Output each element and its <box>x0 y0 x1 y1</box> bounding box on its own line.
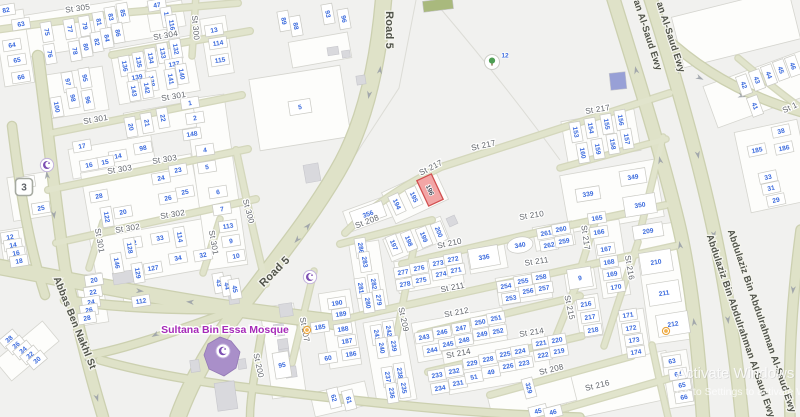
parcel[interactable]: 113 <box>218 219 237 233</box>
watermark-layer: Activate WindowsActivate WindowsGo to Se… <box>676 365 800 398</box>
building <box>303 163 321 183</box>
tree-canopy <box>489 58 495 64</box>
parcel[interactable]: 12 <box>501 52 509 59</box>
parcel[interactable]: 4 <box>195 143 214 157</box>
parcel-number: 64 <box>8 42 17 50</box>
parcel-number: 60 <box>324 355 333 363</box>
parcel-number: 13 <box>210 27 219 35</box>
parcel[interactable]: 5 <box>288 98 312 115</box>
parcel[interactable]: 9 <box>567 266 594 290</box>
park-poi-icon[interactable] <box>662 327 669 334</box>
parcel[interactable]: 188 <box>333 322 352 336</box>
parcel[interactable]: 9 <box>221 234 240 248</box>
parcel[interactable]: 2 <box>185 111 204 125</box>
parcel-number: 12 <box>501 52 509 59</box>
parcel[interactable]: 66 <box>11 70 30 84</box>
parcel[interactable]: 10 <box>226 249 245 263</box>
watermark-line2: Go to Settings to activate W <box>676 386 800 398</box>
parcel[interactable]: 189 <box>331 307 350 321</box>
park-poi-dot <box>305 328 309 332</box>
parcel[interactable]: 210 <box>638 249 673 276</box>
parcel[interactable]: 257 <box>534 281 553 295</box>
parcel-number: 63 <box>17 21 26 29</box>
building <box>237 358 246 369</box>
parcel[interactable]: 167 <box>596 242 615 256</box>
parcel[interactable]: 6 <box>208 185 227 199</box>
crescent-cutout <box>45 161 51 167</box>
parcel[interactable]: 89 <box>277 10 291 32</box>
parcel[interactable]: 186 <box>341 347 360 361</box>
park-poi-icon[interactable] <box>303 326 310 333</box>
city-block <box>288 32 352 68</box>
mosque-building-group[interactable] <box>204 337 240 376</box>
parcel[interactable]: 64 <box>2 38 21 52</box>
route-shield-number: 3 <box>21 183 27 194</box>
building <box>422 0 453 12</box>
parcel-number: 25 <box>37 205 46 213</box>
parcel[interactable]: 169 <box>602 267 621 281</box>
building <box>446 215 458 227</box>
building <box>277 338 288 349</box>
park-poi-dot <box>664 329 668 333</box>
mosque-label: Sultana Bin Essa Mosque <box>161 324 289 336</box>
star-dot <box>224 348 226 350</box>
road-label: Road 5 <box>383 11 395 49</box>
parcel[interactable]: 171 <box>618 308 637 322</box>
parcel[interactable]: 254 <box>496 279 515 293</box>
map-canvas[interactable]: 8263646566757779818385767880828486979510… <box>0 0 800 417</box>
building <box>279 303 294 318</box>
parcel[interactable]: 63 <box>11 17 30 31</box>
parcel-number: 95 <box>278 362 287 370</box>
parcel[interactable]: 5 <box>197 160 216 174</box>
building <box>342 50 351 58</box>
watermark-line1: Activate Windows <box>676 365 794 382</box>
star-dot <box>311 274 313 276</box>
map-svg: 8263646566757779818385767880828486979510… <box>0 0 800 417</box>
parcel[interactable]: 168 <box>599 255 618 269</box>
tree-icon[interactable] <box>485 55 500 70</box>
parcel[interactable]: 211 <box>646 280 681 307</box>
parcel[interactable]: 216 <box>576 297 595 311</box>
parcel[interactable]: 166 <box>589 225 608 239</box>
mosque-icon[interactable] <box>303 270 316 283</box>
parcel-number: 10 <box>232 253 241 261</box>
road-direction-arrow <box>695 74 704 82</box>
parcel[interactable]: 218 <box>583 323 602 337</box>
mosque-icon[interactable] <box>40 158 53 171</box>
parcel-number: 65 <box>13 57 22 65</box>
parcel[interactable]: 185 <box>310 320 329 334</box>
parcel[interactable]: 173 <box>624 333 643 347</box>
street-label: St 210 <box>519 209 545 222</box>
parcel[interactable]: 114 <box>208 36 227 50</box>
crescent-cutout <box>308 273 314 279</box>
parcel[interactable]: 18 <box>9 254 28 268</box>
parcel[interactable]: 96 <box>337 8 351 30</box>
street-label: St 211 <box>524 255 550 268</box>
parcel[interactable]: 88 <box>289 15 303 37</box>
parcel[interactable]: 65 <box>7 53 26 67</box>
parcel-number: 18 <box>15 258 24 266</box>
parcel[interactable]: 165 <box>587 211 606 225</box>
building <box>190 359 201 372</box>
parcel-number: 82 <box>2 7 11 15</box>
parcel[interactable]: 253 <box>501 291 520 305</box>
parcel[interactable]: 212 <box>655 311 690 338</box>
building <box>609 72 627 91</box>
parcel[interactable]: 187 <box>337 334 356 348</box>
parcel[interactable]: 93 <box>321 3 335 25</box>
route-3-shield: 3 <box>16 179 33 196</box>
building <box>214 381 238 412</box>
parcel[interactable]: 60 <box>318 351 337 365</box>
parcel-number: 66 <box>17 74 26 82</box>
parcel[interactable]: 172 <box>621 321 640 335</box>
parcel[interactable]: 148 <box>182 127 201 141</box>
building <box>356 75 366 85</box>
crescent-cutout <box>221 347 228 354</box>
parcel[interactable]: 115 <box>210 53 229 67</box>
parcel[interactable]: 25 <box>31 201 50 215</box>
parcel[interactable]: 112 <box>131 294 150 308</box>
parcel[interactable]: 170 <box>606 280 625 294</box>
mosque-icon[interactable] <box>216 344 230 358</box>
parcel[interactable]: 20 <box>84 273 103 287</box>
parcel[interactable]: 217 <box>580 310 599 324</box>
building <box>327 46 339 56</box>
parcel[interactable]: 7 <box>212 202 231 216</box>
parcel[interactable]: 234 <box>430 381 450 395</box>
star-dot <box>48 162 50 164</box>
parcel-number: 28 <box>83 315 92 323</box>
parcel[interactable]: 13 <box>204 23 223 37</box>
parcel[interactable]: 174 <box>626 345 645 359</box>
parcel-number: 20 <box>90 277 99 285</box>
